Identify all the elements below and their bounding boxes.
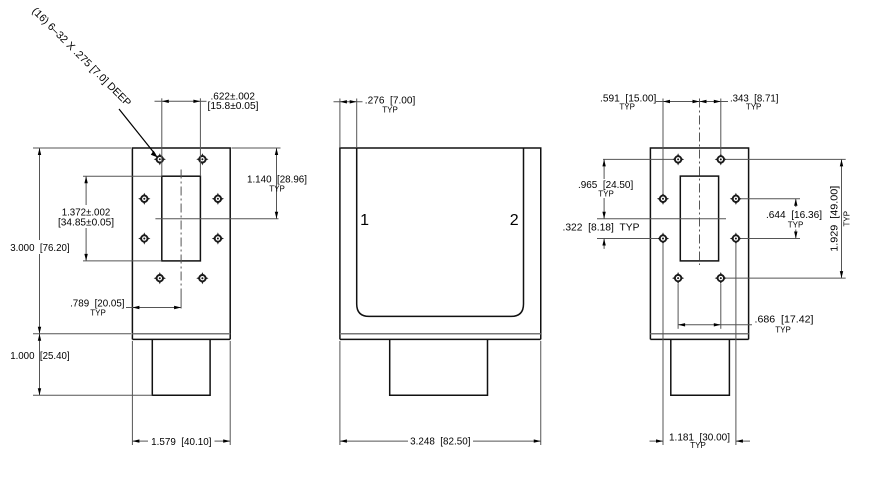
svg-text:3.248 [82.50]: 3.248 [82.50] xyxy=(410,436,470,448)
svg-text:3.000 [76.20]: 3.000 [76.20] xyxy=(10,242,69,254)
svg-text:TYP: TYP xyxy=(775,325,791,334)
svg-text:TYP: TYP xyxy=(690,441,706,450)
svg-text:TYP: TYP xyxy=(843,211,852,227)
svg-text:(16) 6–32 X .275 [7.0] DEEP: (16) 6–32 X .275 [7.0] DEEP xyxy=(29,5,133,109)
svg-text:2: 2 xyxy=(510,212,519,229)
svg-text:1.929 [49.00]: 1.929 [49.00] xyxy=(829,186,841,252)
svg-text:TYP: TYP xyxy=(382,106,398,115)
svg-text:TYP: TYP xyxy=(90,309,106,318)
svg-text:.322 [8.18] TYP: .322 [8.18] TYP xyxy=(563,222,640,234)
svg-text:TYP: TYP xyxy=(788,220,804,229)
svg-text:1: 1 xyxy=(360,212,369,229)
svg-text:TYP: TYP xyxy=(746,103,762,112)
svg-text:1.000 [25.40]: 1.000 [25.40] xyxy=(10,350,69,362)
svg-text:TYP: TYP xyxy=(598,189,614,198)
svg-text:TYP: TYP xyxy=(269,185,285,194)
svg-text:1.579 [40.10]: 1.579 [40.10] xyxy=(151,436,211,448)
svg-text:.644 [16.36]: .644 [16.36] xyxy=(766,209,822,221)
svg-text:TYP: TYP xyxy=(619,103,635,112)
svg-text:[15.8±0.05]: [15.8±0.05] xyxy=(208,100,259,112)
svg-text:[34.85±0.05]: [34.85±0.05] xyxy=(58,217,114,229)
svg-text:.686 [17.42]: .686 [17.42] xyxy=(755,314,814,326)
